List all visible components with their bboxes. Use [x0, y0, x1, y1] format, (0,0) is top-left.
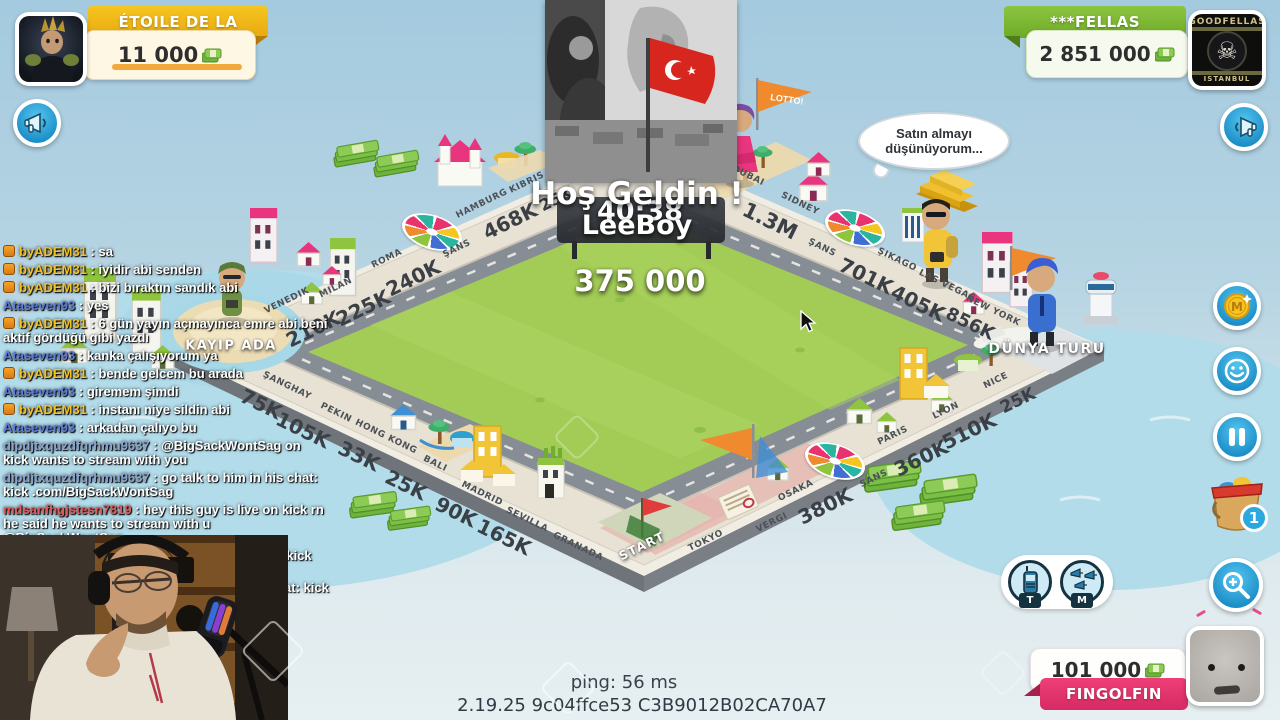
- avatar-clan-title: GOODFELLAS: [1192, 17, 1262, 27]
- chat-separator: :: [75, 420, 87, 435]
- chat-message: Ataseven93 : kanka çalışıyorum ya: [3, 349, 329, 363]
- player-bottom-avatar: [1186, 626, 1264, 706]
- corner-label-dunya-turu: DÜNYA TURU: [988, 341, 1105, 357]
- chat-message: dipdjtxquzdfqrhmu9637 : @BigSackWontSag …: [3, 439, 329, 467]
- pause-icon: [1227, 426, 1247, 448]
- scoreboard-leg: [572, 241, 577, 259]
- chat-message: Ataseven93 : yes: [3, 299, 329, 313]
- player-left-avatar: [15, 12, 87, 86]
- scoreboard-leg: [706, 241, 711, 259]
- player-right-avatar: GOODFELLAS ☠ ISTANBUL: [1188, 10, 1266, 90]
- chat-separator: :: [150, 438, 162, 453]
- chat-separator: :: [87, 280, 99, 295]
- chat-separator: :: [132, 502, 144, 517]
- zoom-in-button[interactable]: [1209, 558, 1263, 612]
- chat-message: dipdjtxquzdfqrhmu9637 : go talk to him i…: [3, 471, 329, 499]
- ataturk-photo-overlay: [545, 0, 737, 183]
- magnifier-plus-icon: [1221, 570, 1251, 600]
- megaphone-key-badge: M: [1071, 593, 1093, 608]
- emotes-button[interactable]: [1213, 347, 1261, 395]
- chat-separator: :: [75, 348, 87, 363]
- skull-icon: ☠: [1207, 31, 1247, 71]
- chat-text: sa: [98, 244, 112, 259]
- chat-message: Ataseven93 : giremem şimdi: [3, 385, 329, 399]
- chat-message: Ataseven93 : arkadan çalıyo bu: [3, 421, 329, 435]
- voice-toggle-right-button[interactable]: [1220, 103, 1268, 151]
- player-left-name: ÉTOILE DE LA: [119, 13, 238, 31]
- chat-username: byADEM31: [19, 280, 87, 295]
- chat-username: byADEM31: [19, 366, 87, 381]
- subscriber-badge-icon: [3, 403, 15, 415]
- player-bottom-name: FINGOLFIN: [1066, 685, 1162, 703]
- money-underline: [112, 64, 242, 70]
- talk-key-badge: T: [1019, 593, 1041, 608]
- money-bill-icon: [1155, 47, 1175, 62]
- smiley-icon: [1223, 357, 1251, 385]
- avatar-eye: [1208, 664, 1215, 671]
- chat-text: bizi bıraktın sandık abi: [98, 280, 237, 295]
- pot-amount: 375 000: [574, 264, 705, 298]
- welcome-player-name: LeeBoy: [582, 210, 693, 241]
- chat-message: byADEM31 : bende gelcem bu arada: [3, 367, 329, 381]
- chat-message: byADEM31 : 6 gün yayın açmayınca emre ab…: [3, 317, 329, 345]
- chat-message: byADEM31 : instanı niye sildin abi: [3, 403, 329, 417]
- chat-text: bende gelcem bu arada: [98, 366, 243, 381]
- webcam-feed: [0, 535, 288, 720]
- chat-separator: :: [150, 470, 162, 485]
- welcome-message: Hoş Geldin !: [530, 176, 743, 212]
- avatar-clan-subtitle: ISTANBUL: [1204, 75, 1251, 83]
- player-right-name: ***FELLAS: [1050, 13, 1140, 31]
- chat-username: byADEM31: [19, 402, 87, 417]
- chat-message: byADEM31 : iyidir abi senden: [3, 263, 329, 277]
- player-left-money-panel: 11 000: [84, 30, 256, 80]
- mouse-cursor: [799, 310, 817, 334]
- pause-button[interactable]: [1213, 413, 1261, 461]
- chat-username: byADEM31: [19, 316, 87, 331]
- chat-text: kanka çalışıyorum ya: [87, 348, 218, 363]
- chat-username: Ataseven93: [3, 298, 75, 313]
- player-right-money-panel: 2 851 000: [1026, 30, 1188, 78]
- chat-username: Ataseven93: [3, 348, 75, 363]
- bucket-badge: 1: [1240, 504, 1268, 532]
- chat-text: giremem şimdi: [87, 384, 179, 399]
- chat-separator: :: [87, 366, 99, 381]
- voice-toggle-left-button[interactable]: [13, 99, 61, 147]
- chat-username: Ataseven93: [3, 420, 75, 435]
- chat-separator: :: [87, 316, 99, 331]
- chat-separator: :: [75, 384, 87, 399]
- avatar-eye: [1238, 664, 1245, 671]
- avatar-mouth: [1214, 685, 1240, 695]
- subscriber-badge-icon: [3, 263, 15, 275]
- subscriber-badge-icon: [3, 281, 15, 293]
- chat-username: Ataseven93: [3, 384, 75, 399]
- svg-text:M: M: [1231, 300, 1243, 314]
- currency-button[interactable]: M: [1213, 282, 1261, 330]
- megaphone-icon: [24, 111, 50, 135]
- subscriber-badge-icon: [3, 367, 15, 379]
- coin-icon: M: [1222, 291, 1252, 321]
- money-bill-icon: [1145, 663, 1165, 678]
- player-right-money: 2 851 000: [1039, 42, 1150, 66]
- chat-separator: :: [87, 262, 99, 277]
- version-string: 2.19.25 9c04ffce53 C3B9012B02CA70A7: [457, 695, 827, 716]
- chat-text: instanı niye sildin abi: [98, 402, 229, 417]
- subscriber-badge-icon: [3, 245, 15, 257]
- subscriber-badge-icon: [3, 317, 15, 329]
- speech-bubble: Satın almayı düşünüyorum...: [858, 112, 1010, 170]
- banner-fold: [1004, 36, 1020, 48]
- player-bottom-banner: FINGOLFIN: [1040, 678, 1188, 710]
- megaphone-icon: [1231, 115, 1257, 139]
- items-bucket-button[interactable]: 1: [1206, 474, 1268, 538]
- chat-separator: :: [87, 244, 99, 259]
- chat-message: byADEM31 : sa: [3, 245, 329, 259]
- chat-text: yes: [87, 298, 109, 313]
- chat-username: dipdjtxquzdfqrhmu9637: [3, 438, 150, 453]
- chat-username: byADEM31: [19, 244, 87, 259]
- chat-username: mdsanfhgjstesn7819: [3, 502, 132, 517]
- chat-message: byADEM31 : bizi bıraktın sandık abi: [3, 281, 329, 295]
- chat-text: arkadan çalıyo bu: [87, 420, 197, 435]
- chat-text: iyidir abi senden: [98, 262, 201, 277]
- chat-separator: :: [75, 298, 87, 313]
- chat-separator: :: [87, 402, 99, 417]
- money-bill-icon: [202, 48, 222, 63]
- chat-username: dipdjtxquzdfqrhmu9637: [3, 470, 150, 485]
- game-screen: LOTTO!: [0, 0, 1280, 720]
- chat-username: byADEM31: [19, 262, 87, 277]
